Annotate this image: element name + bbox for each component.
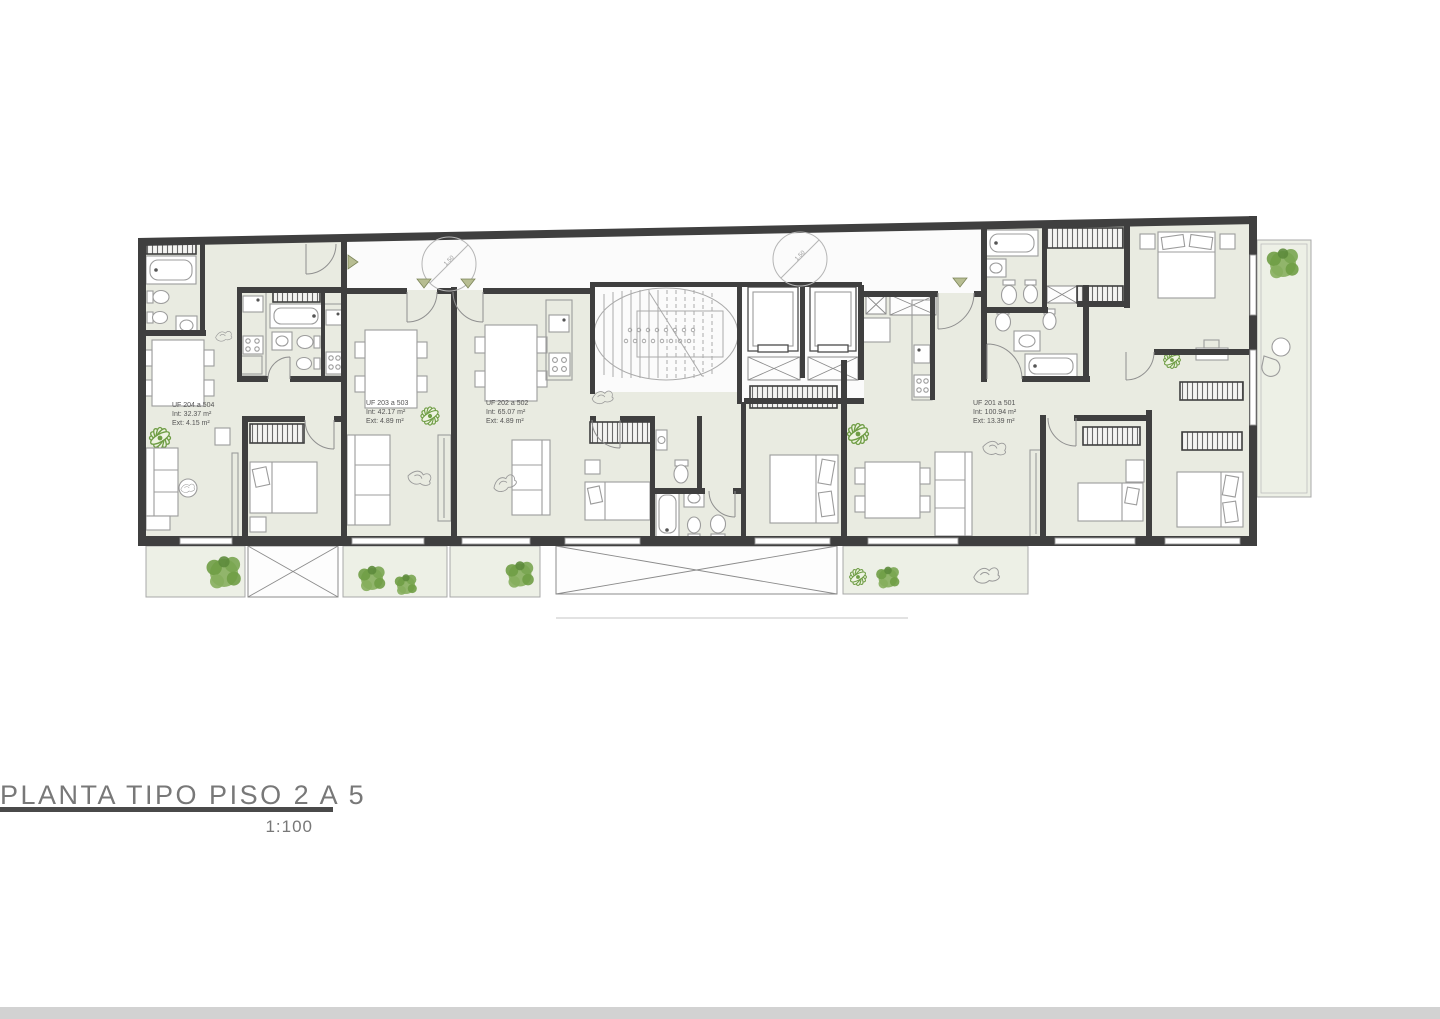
nightstand [1140,234,1155,249]
balcony-tree [207,556,241,588]
bidet-icon [147,312,168,324]
unit-label-202: UF 202 a 502 Int: 65.07 m² Ext: 4.89 m² [486,400,529,425]
bidet-icon [1024,280,1038,303]
balcony-void-1 [248,546,338,597]
double-bed-icon [770,455,838,523]
unit-label-203: UF 203 a 503 Int: 42.17 m² Ext: 4.89 m² [366,400,409,425]
bathtub-icon [656,492,679,538]
bathtub-icon [986,230,1038,256]
single-bed-icon [1078,483,1143,521]
closet [1180,382,1243,400]
svg-text:UF 202 a 502: UF 202 a 502 [486,400,529,407]
closet [1047,228,1123,248]
scale-label: 1:100 [0,817,313,837]
kitchen-sink-icon [326,310,342,325]
svg-text:Ext: 13.39 m²: Ext: 13.39 m² [973,418,1015,425]
nightstand [250,517,266,532]
kitchen-sink-icon [243,296,263,312]
svg-text:Ext: 4.15 m²: Ext: 4.15 m² [172,420,210,427]
terrace-tree [1267,248,1299,278]
unit-label-204: UF 204 a 504 Int: 32.37 m² Ext: 4.15 m² [172,402,215,427]
stove-icon [914,375,931,397]
duct-shaft-large [890,295,936,315]
dining-table [485,325,537,401]
balcony-4 [843,546,1028,594]
stove-icon [549,353,570,376]
svg-text:Int: 100.94 m²: Int: 100.94 m² [973,409,1017,416]
page-footer-strip [0,1007,1440,1019]
sofa-icon [935,452,972,536]
balcony-2 [343,546,447,597]
double-bed-icon [1177,472,1243,527]
terrace [1257,240,1311,497]
bathtub-icon [270,304,322,328]
dining-202 [475,325,547,401]
stove-icon [326,352,343,374]
closet [750,386,837,408]
toilet-icon [297,336,320,349]
sofa-icon [512,440,550,515]
sink-icon [272,332,292,350]
sink-icon [1014,331,1040,351]
svg-text:Int: 42.17 m²: Int: 42.17 m² [366,409,406,416]
toilet-icon [674,460,688,483]
dining-table-icon [355,330,427,408]
closet [1083,427,1140,445]
svg-text:Ext: 4.89 m²: Ext: 4.89 m² [366,418,404,425]
bathtub-icon [146,256,196,284]
svg-text:UF 203 a 503: UF 203 a 503 [366,400,409,407]
toilet-icon [1002,280,1017,305]
nightstand [585,460,600,474]
closet [1182,432,1242,450]
desk [1126,460,1144,482]
svg-text:UF 204 a 504: UF 204 a 504 [172,402,215,409]
closet [590,422,652,443]
bathtub-icon [1025,354,1077,378]
title-underline [0,807,333,812]
cabinet [215,428,230,445]
double-bed-icon [1158,232,1215,298]
closet [250,424,304,443]
toilet-icon [147,291,169,304]
kitchen-sink-icon [549,315,569,332]
stove-icon [243,336,263,354]
svg-text:Int: 32.37 m²: Int: 32.37 m² [172,411,212,418]
elevator-shaft-1 [748,357,800,380]
bidet-icon [688,517,701,539]
balcony-void-2 [556,546,837,594]
dining-table-icon [855,462,930,518]
elevator-shaft-2 [808,357,858,380]
sofa-icon [347,435,390,525]
single-bed-icon [250,462,317,513]
floor-plan-drawing: 1.50 1.50 UF 204 a 504 Int: 32.37 m² Ext… [0,0,1440,1019]
toilet-icon [711,515,726,539]
nightstand [1220,234,1235,249]
single-bed-icon [585,482,650,520]
elevator-1 [748,287,798,352]
svg-text:Ext: 4.89 m²: Ext: 4.89 m² [486,418,524,425]
duct-shaft-small [866,295,886,314]
sink-icon [656,430,667,450]
west-wall [138,238,146,544]
unit-label-201: UF 201 a 501 Int: 100.94 m² Ext: 13.39 m… [973,400,1017,425]
terrace-table [1272,338,1290,356]
svg-text:Int: 65.07 m²: Int: 65.07 m² [486,409,526,416]
dining-table [152,340,204,406]
svg-text:UF 201 a 501: UF 201 a 501 [973,400,1016,407]
elevator-2 [810,287,856,352]
kitchen-sink-icon [914,345,930,363]
bidet-icon [297,358,321,370]
sink-icon [986,259,1006,277]
dining-204 [142,340,214,406]
kitchen-island [862,318,890,342]
